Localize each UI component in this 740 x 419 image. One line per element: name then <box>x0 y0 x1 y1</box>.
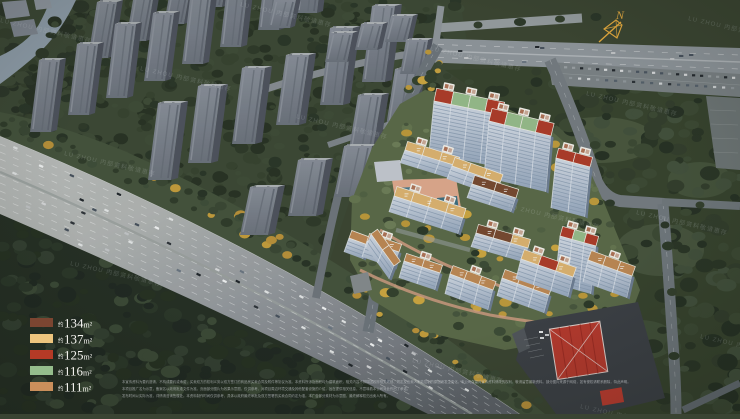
svg-text:发布时间以实际为准，详情请咨询售楼处。本资料制作时间仅供参考: 发布时间以实际为准，详情请咨询售楼处。本资料制作时间仅供参考，具体以政府最终审批… <box>122 393 390 398</box>
svg-text:本项目推广名为示意，备案名以政府批准文件为准。页面部分图片为: 本项目推广名为示意，备案名以政府批准文件为准。页面部分图片为效果示意图，仅供参考… <box>122 386 410 391</box>
svg-text:本宣传资料为要约邀请，不构成要约或承诺，买卖双方的权利义务以: 本宣传资料为要约邀请，不构成要约或承诺，买卖双方的权利义务以双方签订的商品房买卖… <box>122 379 631 384</box>
